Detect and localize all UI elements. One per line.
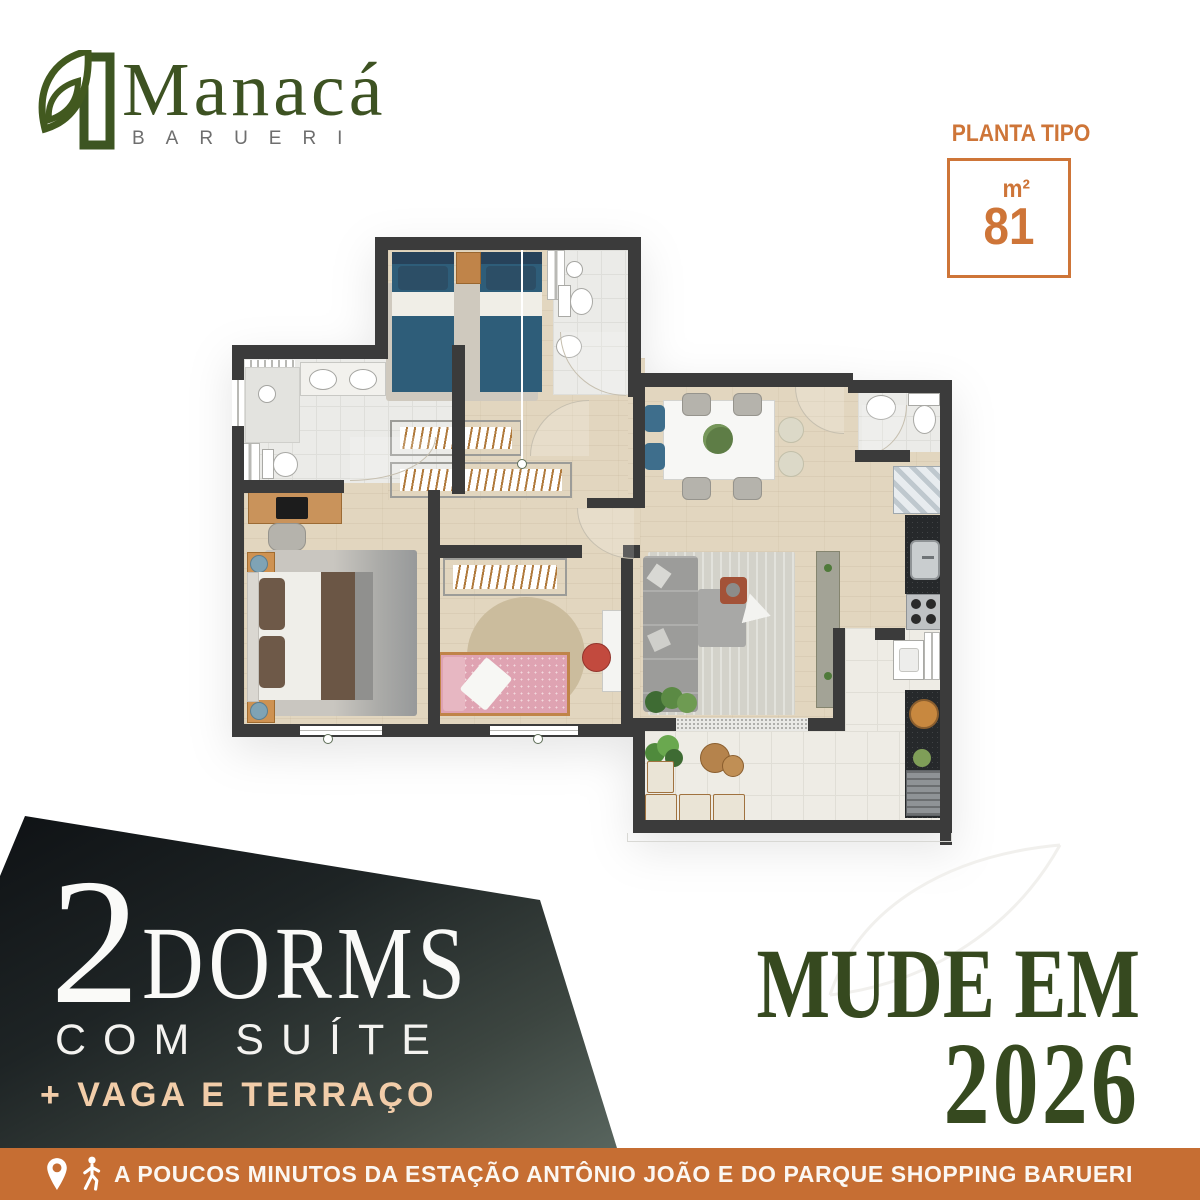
wardrobe: [443, 558, 567, 596]
dining-armchair: [644, 405, 665, 432]
walking-person-icon: [80, 1156, 104, 1192]
wall: [628, 237, 641, 397]
offer-feature: COM SUÍTE: [55, 1016, 447, 1065]
plan-badge: PLANTA TIPO m² 81: [944, 120, 1074, 278]
terrace-threshold: [676, 718, 808, 731]
terrace-seat: [647, 761, 674, 793]
dining-chair: [682, 393, 711, 416]
cta-line1: MUDE EM: [672, 938, 1140, 1030]
plan-badge-box: m² 81: [947, 158, 1071, 278]
twin-bed: [392, 252, 454, 392]
section-marker: [517, 459, 527, 469]
coffee-table: [720, 577, 747, 604]
dining-chair: [733, 393, 762, 416]
shower-area: [245, 367, 300, 443]
wall: [633, 386, 645, 502]
footer-message: A POUCOS MINUTOS DA ESTAÇÃO ANTÔNIO JOÃO…: [114, 1161, 1133, 1188]
toilet-bowl: [570, 288, 593, 315]
wall: [621, 558, 633, 724]
single-bed: [438, 652, 570, 716]
toilet-bowl: [273, 452, 298, 477]
shower-head: [566, 261, 583, 278]
wall: [244, 480, 344, 493]
wall: [848, 380, 952, 393]
leaf-logo-icon: [36, 50, 116, 157]
promo-page: { "brand": {"name": "Manacá", "city": "B…: [0, 0, 1200, 1200]
plan-badge-label: PLANTA TIPO: [952, 120, 1066, 148]
offer-extras: + VAGA E TERRAÇO: [40, 1076, 437, 1115]
desk-chair: [268, 523, 306, 551]
table-plant: [703, 424, 733, 454]
service-door: [924, 632, 940, 680]
terrace-seat: [679, 794, 711, 822]
wall: [940, 380, 952, 845]
toilet-bowl: [913, 405, 936, 434]
terrace-seat: [645, 794, 677, 822]
wall: [232, 345, 388, 359]
terrace-table: [722, 755, 744, 777]
wall: [633, 820, 952, 833]
dining-chair: [682, 477, 711, 500]
dining-chair: [733, 477, 762, 500]
wardrobe: [390, 462, 572, 498]
window: [490, 726, 578, 735]
plant: [645, 687, 700, 717]
wall: [641, 373, 853, 387]
wall: [428, 490, 440, 724]
window: [232, 380, 244, 426]
wall: [375, 237, 388, 348]
place-setting: [778, 417, 804, 443]
window-marker: [533, 734, 543, 744]
brand-city: BARUERI: [132, 128, 363, 150]
glass-partition: [893, 466, 942, 514]
window-marker: [323, 734, 333, 744]
wall: [855, 450, 910, 462]
wall: [452, 345, 465, 494]
wall: [633, 718, 676, 731]
laundry-sink: [893, 640, 924, 680]
wall: [587, 498, 645, 508]
section-line: [521, 237, 523, 463]
dining-armchair: [644, 443, 665, 470]
floorplan: [230, 237, 952, 845]
terrace-seat: [713, 794, 745, 822]
double-bed: [247, 572, 373, 700]
footer-bar: A POUCOS MINUTOS DA ESTAÇÃO ANTÔNIO JOÃO…: [0, 1148, 1200, 1200]
shower-fixture: [258, 385, 276, 403]
bedside-lamp: [250, 702, 268, 720]
desk: [248, 492, 342, 524]
bathroom-window: [245, 360, 295, 367]
double-sink-counter: [300, 362, 386, 396]
place-setting: [778, 451, 804, 477]
grill: [906, 770, 941, 816]
plan-badge-area: 81: [957, 204, 1061, 251]
offer-quantity: 2: [50, 852, 140, 1032]
cta-line2: 2026: [672, 1030, 1140, 1139]
bedside-lamp: [250, 555, 268, 573]
cta-block: MUDE EM 2026: [540, 938, 1140, 1139]
offer-type: DORMS: [142, 912, 470, 1016]
location-pin-icon: [44, 1157, 70, 1191]
window: [300, 726, 382, 735]
wall: [375, 237, 640, 250]
twin-bed: [480, 252, 542, 392]
wall: [875, 628, 905, 640]
wall: [633, 731, 645, 833]
kitchen-sink: [910, 540, 940, 580]
brand-name: Manacá: [122, 52, 387, 128]
kids-chair: [582, 643, 611, 672]
plate: [913, 749, 931, 767]
serving-bowl: [909, 699, 939, 729]
nightstand: [456, 252, 481, 284]
stove: [906, 594, 942, 630]
wall: [833, 628, 845, 731]
wall: [440, 545, 582, 558]
